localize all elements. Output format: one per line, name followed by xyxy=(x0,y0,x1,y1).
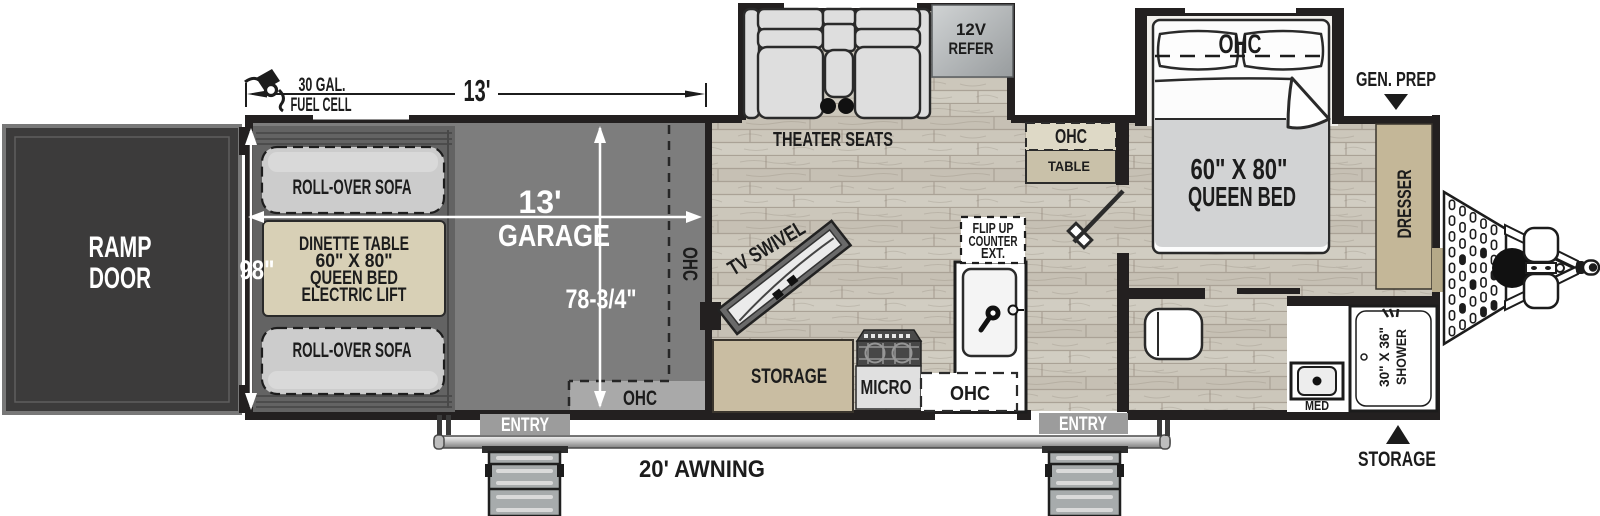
svg-text:MED: MED xyxy=(1305,398,1329,413)
svg-text:98": 98" xyxy=(240,255,275,285)
svg-text:TABLE: TABLE xyxy=(1048,158,1090,174)
svg-text:DOOR: DOOR xyxy=(89,262,151,295)
svg-text:STORAGE: STORAGE xyxy=(1358,448,1436,471)
svg-text:20' AWNING: 20' AWNING xyxy=(639,456,765,483)
svg-text:OHC: OHC xyxy=(623,387,657,410)
svg-text:THEATER SEATS: THEATER SEATS xyxy=(773,129,893,151)
svg-text:MICRO: MICRO xyxy=(861,377,912,399)
svg-text:13': 13' xyxy=(464,73,491,108)
svg-text:OHC: OHC xyxy=(678,247,701,281)
svg-text:OHC: OHC xyxy=(1219,29,1262,59)
svg-text:ROLL-OVER SOFA: ROLL-OVER SOFA xyxy=(293,176,412,199)
svg-text:GARAGE: GARAGE xyxy=(498,218,610,253)
svg-text:REFER: REFER xyxy=(949,39,994,58)
svg-text:OHC: OHC xyxy=(950,383,990,405)
svg-text:ENTRY: ENTRY xyxy=(501,415,549,436)
svg-text:78-3/4": 78-3/4" xyxy=(566,284,637,314)
svg-text:30 GAL.: 30 GAL. xyxy=(299,75,346,96)
svg-text:ELECTRIC LIFT: ELECTRIC LIFT xyxy=(302,285,407,306)
svg-text:QUEEN BED: QUEEN BED xyxy=(1188,181,1296,212)
svg-text:OHC: OHC xyxy=(1055,126,1087,148)
svg-text:RAMP: RAMP xyxy=(89,231,152,264)
svg-text:EXT.: EXT. xyxy=(981,246,1005,262)
svg-text:12V: 12V xyxy=(956,20,987,39)
svg-text:DRESSER: DRESSER xyxy=(1395,169,1416,238)
svg-text:SHOWER: SHOWER xyxy=(1393,329,1409,385)
svg-text:GEN. PREP: GEN. PREP xyxy=(1356,69,1436,91)
svg-text:ENTRY: ENTRY xyxy=(1059,414,1107,435)
svg-text:30" X 36": 30" X 36" xyxy=(1376,327,1392,387)
svg-text:13': 13' xyxy=(518,184,561,220)
svg-text:FUEL CELL: FUEL CELL xyxy=(291,95,352,116)
svg-text:STORAGE: STORAGE xyxy=(751,365,827,388)
svg-text:ROLL-OVER SOFA: ROLL-OVER SOFA xyxy=(293,339,412,362)
